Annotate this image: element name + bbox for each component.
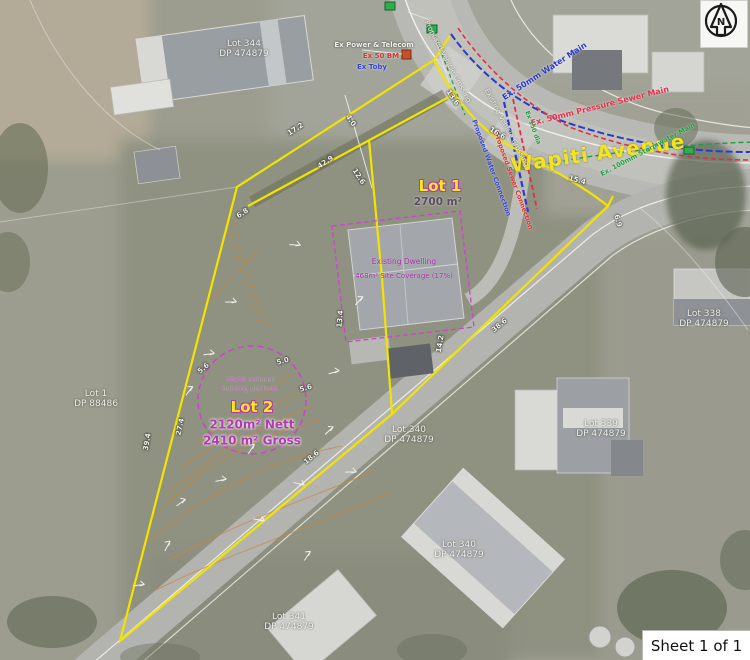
parcel-dp: DP 474879 xyxy=(264,623,314,633)
parcel-dp: DP 474879 xyxy=(576,430,626,440)
batter-hatch xyxy=(225,232,239,238)
parcel-dp: DP 474879 xyxy=(384,436,434,446)
parcel-dp: DP 474879 xyxy=(219,50,269,60)
house-roof xyxy=(572,50,622,90)
dwelling-label-line2: 468m² Site Coverage (17%) xyxy=(355,273,453,281)
dwelling-label-line1: Existing Dwelling xyxy=(372,258,436,266)
garage-roof xyxy=(110,79,173,115)
batter-hatch xyxy=(230,244,244,250)
batter-hatch xyxy=(234,257,248,263)
parcel-label: Lot 1DP 88486 xyxy=(74,390,118,410)
parcel-dp: DP 474879 xyxy=(679,320,729,330)
spot-level-arrow xyxy=(215,475,226,484)
parcel-dp: DP 88486 xyxy=(74,400,118,410)
lot1-name-label: Lot 1 xyxy=(419,178,462,195)
spot-level-arrow xyxy=(203,348,215,358)
spot-level-arrow xyxy=(323,425,334,434)
batter-hatch xyxy=(251,307,265,313)
survey-plan-map: Wapiti Avenue Lot 1 2700 m² 20x30 notion… xyxy=(0,0,750,660)
platform-note-line2: building platform xyxy=(222,385,278,392)
sheet-label-box: Sheet 1 of 1 xyxy=(642,630,750,660)
batter-hatch xyxy=(255,319,269,325)
water-tank xyxy=(589,626,611,648)
batter-hatch xyxy=(247,294,261,300)
spot-level-arrow xyxy=(329,367,340,376)
lot2-name-label: Lot 2 xyxy=(231,399,274,416)
spot-level-arrow xyxy=(225,296,237,307)
house-roof xyxy=(611,440,643,476)
north-arrow-icon: N xyxy=(701,1,741,41)
bm-label: Ex 50 BM xyxy=(363,53,399,61)
house-roof xyxy=(515,390,560,470)
sheet-label: Sheet 1 of 1 xyxy=(651,637,742,655)
garage-roof xyxy=(386,343,433,378)
spot-level-arrow xyxy=(289,239,301,250)
batter-hatch xyxy=(238,269,252,275)
spot-level-arrow xyxy=(175,497,186,506)
dimension-label: 13.4 xyxy=(336,310,345,328)
parcel-label: Lot 341DP 474879 xyxy=(264,613,314,633)
svg-text:N: N xyxy=(717,17,725,28)
parcel-label: Lot 339DP 474879 xyxy=(576,420,626,440)
power-telecom-label: Ex Power & Telecom xyxy=(334,42,413,50)
toby-label: Ex Toby xyxy=(357,64,387,72)
parcel-label: Lot 340DP 474879 xyxy=(384,426,434,446)
parcel-dp: DP 474879 xyxy=(434,551,484,561)
parcel-label: Lot 344DP 474879 xyxy=(219,40,269,60)
north-arrow-box: N xyxy=(700,0,748,48)
lot2-nett-label: 2120m² Nett xyxy=(210,418,295,431)
parcel-label: Lot 340DP 474879 xyxy=(434,541,484,561)
lot1-area-label: 2700 m² xyxy=(414,197,462,209)
shed-roof xyxy=(134,146,180,184)
batter-hatch xyxy=(242,282,256,288)
lot2-gross-label: 2410 m² Gross xyxy=(203,434,301,447)
utility-marker xyxy=(385,2,395,10)
spot-level-arrow xyxy=(301,550,313,561)
platform-note-line1: 20x30 notional xyxy=(226,376,275,383)
power-marker xyxy=(402,50,411,59)
water-tank xyxy=(615,637,635,657)
parcel-label: Lot 338DP 474879 xyxy=(679,310,729,330)
spot-level-arrow xyxy=(161,539,173,550)
